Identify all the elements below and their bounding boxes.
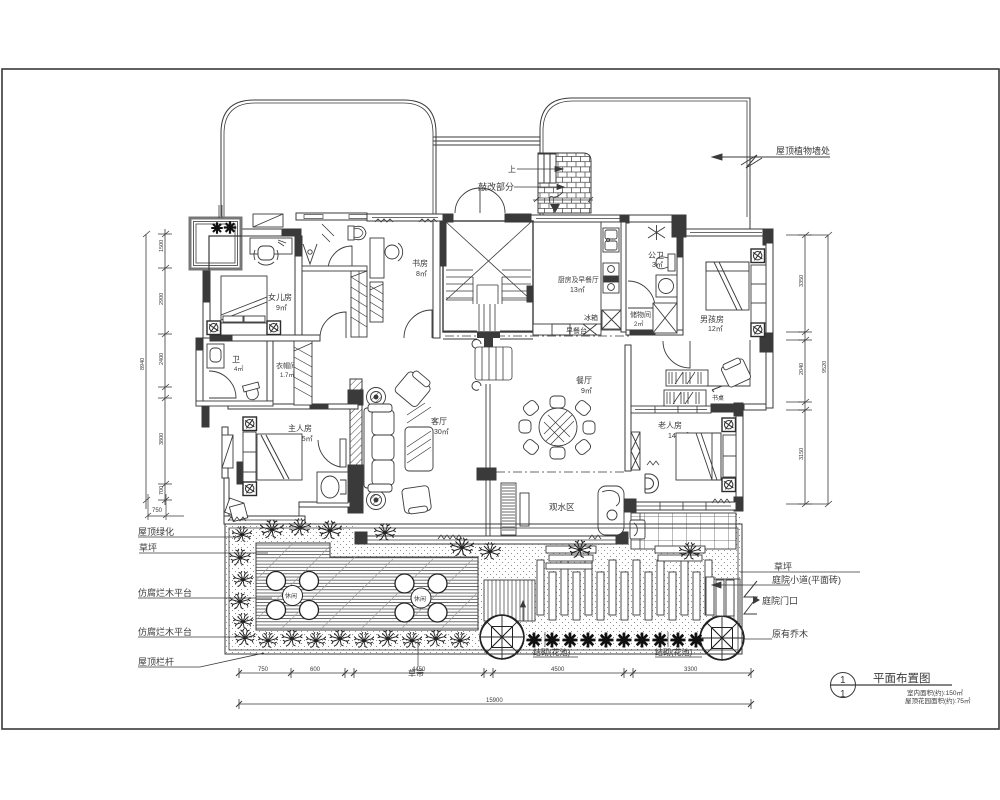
svg-text:草坪: 草坪 bbox=[774, 561, 792, 572]
svg-text:餐厅: 餐厅 bbox=[576, 376, 592, 385]
svg-text:屋顶绿化: 屋顶绿化 bbox=[138, 526, 174, 537]
svg-text:庭院小道(平面砖): 庭院小道(平面砖) bbox=[772, 574, 841, 585]
svg-text:13㎡: 13㎡ bbox=[570, 286, 585, 294]
svg-text:平面布置图: 平面布置图 bbox=[873, 672, 931, 685]
svg-text:厨房及早餐厅: 厨房及早餐厅 bbox=[558, 275, 599, 284]
svg-text:屋顶植物墙处: 屋顶植物墙处 bbox=[776, 145, 830, 156]
svg-text:屋顶花园面积(约):75㎡: 屋顶花园面积(约):75㎡ bbox=[905, 696, 971, 705]
svg-text:早餐台: 早餐台 bbox=[566, 326, 587, 335]
svg-text:结砌(花池): 结砌(花池) bbox=[655, 647, 693, 657]
svg-text:30㎡: 30㎡ bbox=[434, 428, 449, 436]
svg-text:公卫: 公卫 bbox=[648, 251, 664, 260]
svg-text:原有乔木: 原有乔木 bbox=[772, 628, 808, 639]
svg-text:屋顶栏杆: 屋顶栏杆 bbox=[138, 656, 174, 667]
svg-text:2900: 2900 bbox=[159, 293, 165, 305]
svg-text:男孩房: 男孩房 bbox=[700, 314, 724, 324]
svg-text:9㎡: 9㎡ bbox=[581, 387, 592, 395]
svg-text:上: 上 bbox=[508, 165, 516, 174]
svg-text:3150: 3150 bbox=[799, 448, 805, 460]
svg-text:休闲: 休闲 bbox=[414, 595, 426, 603]
svg-text:女儿房: 女儿房 bbox=[268, 292, 292, 302]
svg-text:主人房: 主人房 bbox=[288, 423, 312, 433]
svg-text:600: 600 bbox=[310, 667, 321, 673]
svg-text:储物间: 储物间 bbox=[630, 310, 651, 319]
svg-text:敲改部分: 敲改部分 bbox=[478, 181, 514, 192]
svg-text:室内面积(约):150㎡: 室内面积(约):150㎡ bbox=[907, 688, 963, 697]
svg-text:700: 700 bbox=[159, 486, 165, 495]
svg-text:书桌: 书桌 bbox=[712, 394, 724, 402]
svg-text:观水区: 观水区 bbox=[549, 502, 575, 512]
svg-text:结砌(花池): 结砌(花池) bbox=[533, 647, 571, 657]
svg-text:1500: 1500 bbox=[159, 240, 165, 252]
svg-text:休闲: 休闲 bbox=[285, 592, 297, 600]
svg-text:仿腐烂木平台: 仿腐烂木平台 bbox=[138, 587, 192, 598]
svg-text:客厅: 客厅 bbox=[431, 416, 447, 426]
svg-text:750: 750 bbox=[152, 508, 163, 514]
svg-text:9㎡: 9㎡ bbox=[276, 304, 287, 312]
svg-text:15900: 15900 bbox=[486, 698, 503, 704]
svg-text:1: 1 bbox=[840, 689, 846, 700]
svg-text:4㎡: 4㎡ bbox=[234, 365, 243, 373]
svg-text:2㎡: 2㎡ bbox=[634, 320, 643, 328]
svg-text:书房: 书房 bbox=[412, 258, 428, 268]
svg-text:1.7㎡: 1.7㎡ bbox=[280, 371, 294, 379]
svg-text:2040: 2040 bbox=[799, 363, 805, 375]
svg-text:3800: 3800 bbox=[159, 433, 165, 445]
svg-text:草坪: 草坪 bbox=[139, 542, 157, 553]
svg-text:4500: 4500 bbox=[551, 667, 565, 673]
svg-text:9520: 9520 bbox=[822, 361, 828, 373]
svg-text:老人房: 老人房 bbox=[658, 420, 682, 430]
svg-text:3300: 3300 bbox=[684, 667, 698, 673]
svg-text:1: 1 bbox=[840, 675, 846, 686]
svg-text:8㎡: 8㎡ bbox=[416, 270, 427, 278]
svg-text:卫: 卫 bbox=[232, 355, 240, 364]
svg-text:草带: 草带 bbox=[408, 668, 424, 678]
svg-text:750: 750 bbox=[258, 667, 269, 673]
svg-text:2400: 2400 bbox=[159, 353, 165, 365]
svg-text:庭院门口: 庭院门口 bbox=[762, 595, 798, 606]
svg-text:12㎡: 12㎡ bbox=[708, 325, 723, 333]
svg-text:3350: 3350 bbox=[799, 275, 805, 287]
svg-text:8940: 8940 bbox=[140, 358, 146, 370]
svg-text:仿腐烂木平台: 仿腐烂木平台 bbox=[138, 626, 192, 637]
svg-text:冰箱: 冰箱 bbox=[584, 313, 598, 322]
